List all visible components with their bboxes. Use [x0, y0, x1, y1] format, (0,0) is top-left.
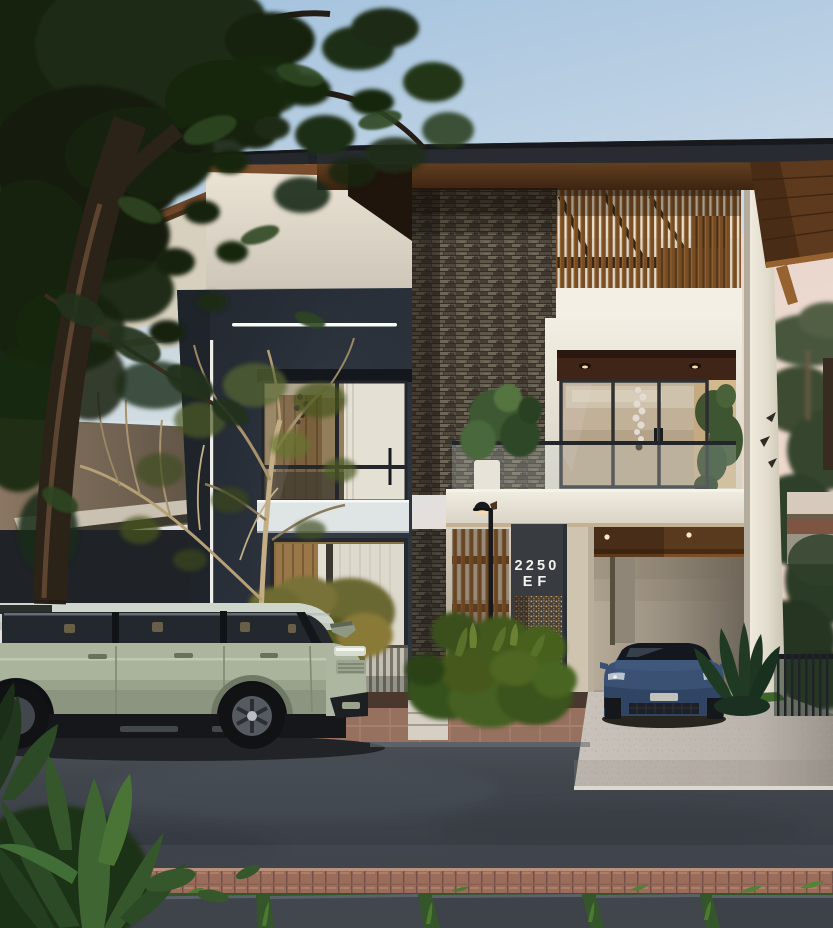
svg-text:2250: 2250 — [514, 558, 559, 574]
svg-text:EF: EF — [523, 574, 552, 590]
